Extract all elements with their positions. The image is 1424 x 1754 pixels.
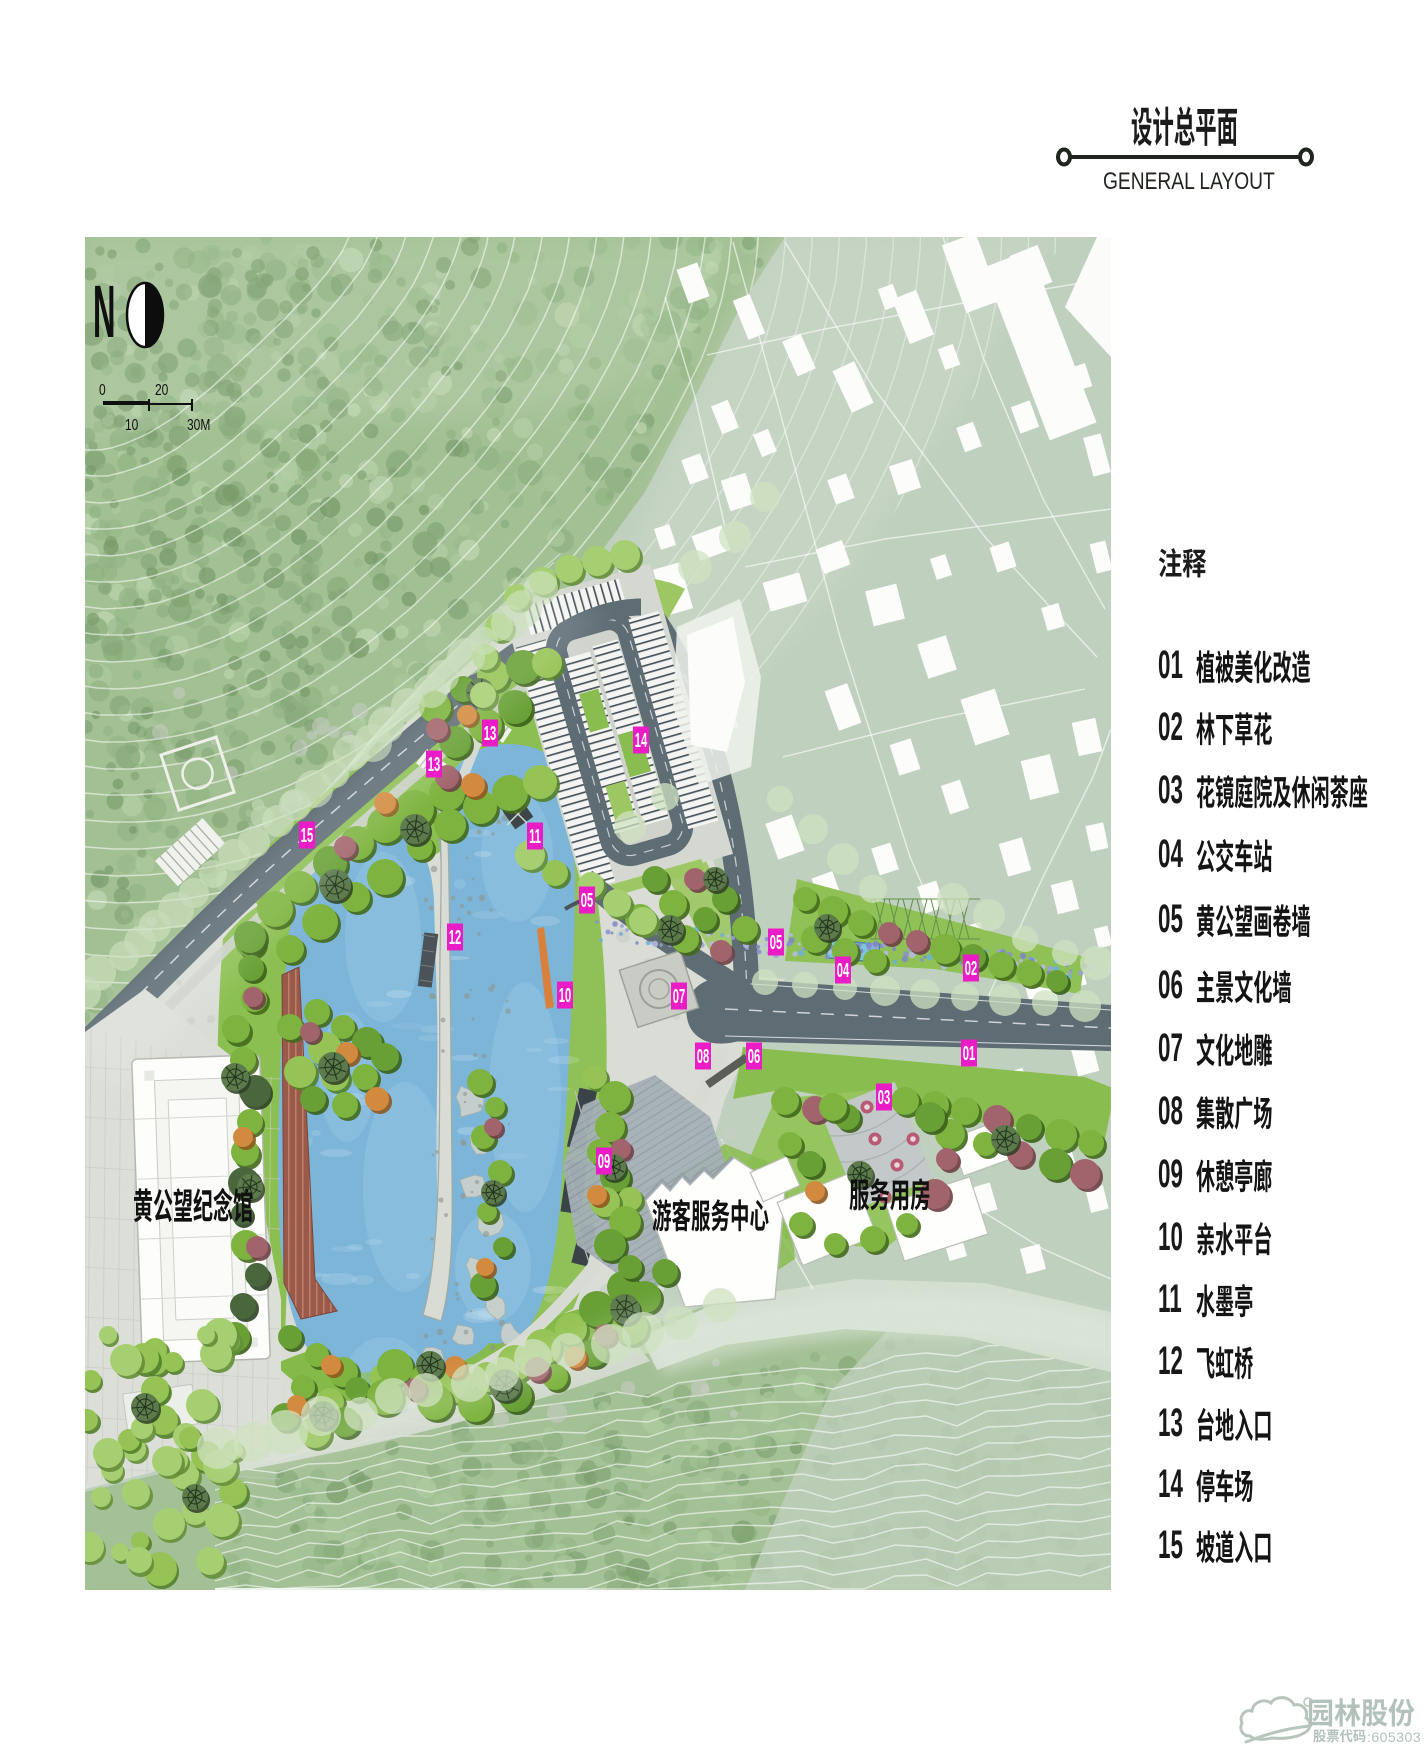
- svg-text:0: 0: [99, 380, 106, 398]
- svg-text:03: 03: [878, 1087, 890, 1109]
- svg-text:05: 05: [770, 932, 782, 954]
- svg-text:02: 02: [965, 958, 977, 980]
- svg-text:N: N: [93, 272, 115, 354]
- svg-text:04: 04: [837, 960, 849, 982]
- svg-text:14: 14: [635, 730, 647, 752]
- svg-text:13: 13: [428, 754, 440, 776]
- svg-text:08: 08: [697, 1046, 709, 1068]
- svg-text:06: 06: [748, 1046, 760, 1068]
- svg-text:30M: 30M: [187, 415, 210, 433]
- svg-text:20: 20: [155, 380, 168, 398]
- svg-text:01: 01: [963, 1043, 975, 1065]
- svg-text:10: 10: [559, 985, 571, 1007]
- svg-text:09: 09: [598, 1151, 610, 1173]
- svg-text:12: 12: [449, 927, 461, 949]
- svg-text:05: 05: [581, 890, 593, 912]
- svg-text:11: 11: [529, 826, 541, 848]
- svg-text:15: 15: [301, 825, 313, 847]
- svg-text:13: 13: [484, 723, 496, 745]
- svg-text:10: 10: [125, 415, 138, 433]
- svg-text:07: 07: [673, 986, 685, 1008]
